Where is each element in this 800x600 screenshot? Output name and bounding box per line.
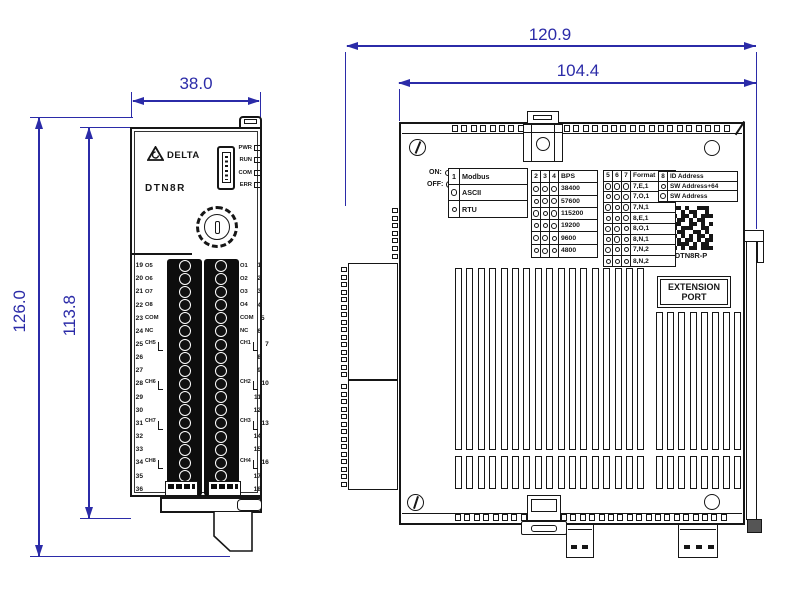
vent-notch (502, 514, 508, 521)
terminal-number: 16 (260, 459, 269, 466)
terminal-row: 22O8 (132, 298, 166, 311)
vent-notch (580, 514, 586, 521)
dim-arrow-up-icon (35, 117, 43, 129)
dip-row-label: 8,N,2 (631, 256, 675, 267)
terminal-screw (179, 339, 191, 351)
vent-slat (535, 268, 542, 450)
terminal-labels-right: O11O22O33O44COM5NC6CH1789CH2101112CH3131… (240, 259, 261, 496)
vent-slat (615, 268, 622, 450)
mount-tooth (341, 282, 347, 287)
led-row: PWR (234, 142, 261, 154)
vent-notch (711, 514, 717, 521)
dim-arrow-left-icon (346, 42, 358, 50)
terminal-screw (179, 312, 191, 324)
vent-slat (489, 268, 496, 450)
dip-row-label: 19200 (559, 220, 597, 231)
dip-row-label: 115200 (559, 208, 597, 219)
dip-header-cell: ID Address (668, 172, 737, 181)
channel-bracket-icon (253, 381, 258, 390)
vent-notch (471, 125, 477, 132)
terminal-number: 18 (252, 486, 261, 493)
dip-row-label: 8,N,1 (631, 235, 675, 245)
dip-switch-cell (613, 213, 622, 223)
vent-notch (592, 125, 598, 132)
dip-table-row: 8,E,1 (604, 213, 675, 224)
mount-tooth (341, 444, 347, 449)
mount-tooth (341, 467, 347, 472)
vent-slat (592, 456, 599, 489)
terminal-screw (179, 378, 191, 390)
terminal-strip-2[interactable] (204, 259, 239, 496)
mount-tooth (341, 384, 347, 389)
din-rail-plate (746, 232, 757, 520)
terminal-number: 24 (132, 328, 143, 335)
dip-state-off-icon (551, 223, 558, 230)
mount-tooth (341, 312, 347, 317)
bottom-connector-2-line (680, 529, 716, 530)
vent-notch (714, 125, 720, 132)
terminal-number: 27 (132, 367, 143, 374)
dip-switch-cell (604, 192, 613, 202)
terminal-row: 14 (240, 430, 261, 443)
dip-table-header: 8ID Address (659, 172, 737, 182)
terminal-row: CH416 (240, 456, 261, 469)
dip-row-label: 7,N,1 (631, 203, 675, 213)
terminal-screw (179, 286, 191, 298)
dip-state-on-icon (615, 247, 620, 252)
mount-tooth (341, 459, 347, 464)
terminal-screw (179, 457, 191, 469)
dip-state-off-icon (614, 226, 621, 233)
vent-slat (478, 268, 485, 450)
mount-tooth (392, 231, 398, 236)
dip-header-cell: 8 (659, 172, 668, 181)
vent-slat (712, 312, 719, 450)
terminal-number: 8 (252, 354, 261, 361)
side-ext-line (399, 89, 400, 121)
vent-notch (674, 514, 680, 521)
mount-tooth (341, 482, 347, 487)
bottom-connector-1-line (568, 529, 592, 530)
dip-state-off-icon (605, 247, 612, 254)
terminal-row: 29 (132, 391, 166, 404)
vent-slat (512, 456, 519, 489)
channel-bracket-icon (158, 460, 163, 469)
vent-notch (474, 514, 480, 521)
dip-state-on-icon (606, 216, 611, 221)
side-ext-line (345, 52, 346, 206)
vent-slat (678, 456, 685, 489)
terminal-screw (215, 273, 227, 285)
dip-table-row: 9600 (532, 232, 597, 244)
terminal-number: 20 (132, 275, 143, 282)
vent-slat (701, 456, 708, 489)
mount-tooth (341, 320, 347, 325)
side-inner-top-line (402, 133, 742, 134)
side-ext-line (756, 52, 757, 229)
vent-notch (611, 125, 617, 132)
terminal-row: 26 (132, 351, 166, 364)
vent-notch (461, 125, 467, 132)
dip-header-cell: 1 (449, 169, 460, 184)
vent-notch (683, 514, 689, 521)
mount-tooth (392, 246, 398, 251)
vent-slat (603, 268, 610, 450)
mount-tooth (392, 208, 398, 213)
dip-switch-cell (541, 183, 550, 194)
terminal-number: 10 (260, 380, 269, 387)
terminal-label: O5 (145, 263, 153, 269)
dim-arrow-right-icon (744, 79, 756, 87)
terminal-label: NC (145, 328, 153, 334)
terminal-number: 29 (132, 394, 143, 401)
dip-state-off-icon (660, 193, 667, 200)
vent-slat (569, 268, 576, 450)
terminal-number: 12 (252, 407, 261, 414)
vent-notch (518, 125, 524, 132)
vent-notch (693, 514, 699, 521)
terminal-number: 11 (252, 394, 261, 401)
vent-slat (466, 268, 473, 450)
vent-notch (599, 514, 605, 521)
terminal-number: 31 (132, 420, 143, 427)
vent-notch (583, 125, 589, 132)
led-label: PWR (238, 145, 252, 151)
channel-bracket-icon (158, 381, 163, 390)
side-inner-width-dim-line (399, 82, 756, 84)
led-indicator (254, 182, 261, 188)
dip-switch-cell (532, 183, 541, 194)
front-ext-line (260, 92, 261, 117)
case-screw[interactable] (704, 494, 720, 510)
vent-slat (569, 456, 576, 489)
terminal-block-profile-1 (348, 263, 398, 380)
dip-table-row: SW Address (659, 191, 737, 201)
dip-table-row: RTU (449, 201, 527, 217)
connector-pin (708, 545, 714, 549)
terminal-row: 9 (240, 364, 261, 377)
vent-slat (734, 312, 741, 450)
terminal-block-profile-2 (348, 380, 398, 490)
vent-slat (580, 456, 587, 489)
terminal-label: CH5 (145, 340, 156, 346)
channel-bracket-icon (253, 460, 258, 469)
mount-tooth (341, 452, 347, 457)
terminal-row: NC6 (240, 325, 261, 338)
dip-switch-cell (659, 191, 668, 201)
mount-tooth (341, 305, 347, 310)
terminal-row: O33 (240, 285, 261, 298)
led-row: ERR (234, 179, 261, 191)
vent-slat (592, 268, 599, 450)
mount-tooth (341, 437, 347, 442)
vent-slat (546, 456, 553, 489)
dip-switch-cell (613, 182, 622, 192)
vent-slat (626, 456, 633, 489)
front-foot-tab (237, 499, 262, 511)
vent-slat (637, 456, 644, 489)
vent-slat (656, 312, 663, 450)
brand-wordmark: DELTA (167, 150, 200, 161)
terminal-label: O3 (240, 289, 248, 295)
dip-state-off-icon (614, 236, 621, 243)
terminal-row: 23COM (132, 312, 166, 325)
case-screw[interactable] (704, 140, 720, 156)
vent-slat (466, 456, 473, 489)
dip-state-off-icon (542, 248, 549, 255)
vent-slat (667, 312, 674, 450)
terminal-screw (215, 365, 227, 377)
vent-notch (499, 125, 505, 132)
dip-header-cell: 6 (613, 171, 622, 181)
dip-state-on-icon (543, 223, 548, 228)
terminal-label: CH3 (240, 418, 251, 424)
vent-slat (523, 268, 530, 450)
dip-row-label: 38400 (559, 183, 597, 194)
vent-notch (561, 514, 567, 521)
led-row: COM (234, 167, 261, 179)
front-ext-line (80, 127, 131, 128)
vent-slat (546, 268, 553, 450)
dip-switch-cell (613, 224, 622, 234)
front-ext-line (80, 518, 131, 519)
din-clip-top-rib (554, 124, 555, 162)
vent-notch (483, 514, 489, 521)
vent-notch (452, 125, 458, 132)
terminal-number: 23 (132, 315, 143, 322)
mount-tooth (341, 342, 347, 347)
led-label: ERR (240, 182, 252, 188)
channel-bracket-icon (253, 421, 258, 430)
terminal-label: CH6 (145, 379, 156, 385)
mount-tooth (341, 392, 347, 397)
mount-tooth (392, 254, 398, 259)
dip-row-label: 9600 (559, 232, 597, 243)
dip-state-on-icon (624, 247, 629, 252)
dip-state-off-icon (623, 215, 630, 222)
dip-switch-cell (532, 220, 541, 231)
dip-state-off-icon (542, 186, 549, 193)
mount-tooth (341, 407, 347, 412)
dip-switch-cell (532, 232, 541, 243)
led-label: RUN (239, 157, 252, 163)
din-clip-top-tab-slot (533, 115, 552, 121)
dip-row-label: SW Address+64 (668, 182, 737, 191)
led-indicator (254, 170, 261, 176)
dip-row-label: 4800 (559, 245, 597, 257)
vent-notch (511, 514, 517, 521)
dip-state-on-icon (624, 237, 629, 242)
dimension-drawing-canvas: 38.0 126.0 113.8 DELTA DTN8R PWRRUNCOMER… (0, 0, 800, 600)
mount-tooth (341, 414, 347, 419)
terminal-screw (179, 444, 191, 456)
dip-state-off-icon (451, 189, 458, 196)
terminal-screw (215, 391, 227, 403)
terminal-screw (179, 365, 191, 377)
vent-notch (508, 125, 514, 132)
dip-state-on-icon (624, 259, 629, 264)
dip-table-baud-rate: 234BPS38400576001152001920096004800 (531, 170, 598, 258)
terminal-number: 5 (256, 315, 265, 322)
terminal-row: 19O5 (132, 259, 166, 272)
terminal-row: O44 (240, 298, 261, 311)
dip-state-on-icon (552, 236, 557, 241)
terminal-screw (215, 325, 227, 337)
terminal-row: COM5 (240, 312, 261, 325)
led-indicator (254, 157, 261, 163)
terminal-row: 18 (240, 483, 261, 496)
terminal-row: 12 (240, 404, 261, 417)
front-top-tab-slot (244, 119, 257, 124)
terminal-screw (179, 352, 191, 364)
terminal-row: CH313 (240, 417, 261, 430)
vent-notch (620, 125, 626, 132)
front-bottom-connector-1-slots (168, 484, 195, 489)
vent-slat (478, 456, 485, 489)
terminal-screw (179, 431, 191, 443)
mount-tooth (392, 216, 398, 221)
terminal-screw (179, 391, 191, 403)
terminal-screw (215, 312, 227, 324)
connector-pin (582, 545, 588, 549)
terminal-row: 33 (132, 443, 166, 456)
dip-header-cell: Modbus (460, 169, 527, 184)
terminal-screw (179, 417, 191, 429)
terminal-screw (179, 325, 191, 337)
mount-tooth (341, 372, 347, 377)
terminal-label: O1 (240, 263, 248, 269)
dip-table-row: 115200 (532, 208, 597, 220)
terminal-row: 31CH7 (132, 417, 166, 430)
dip-state-off-icon (605, 204, 612, 211)
vent-notch (705, 125, 711, 132)
dip-table-row: 7,N,1 (604, 203, 675, 214)
dip-header-cell: 4 (550, 171, 559, 182)
vent-slat (723, 456, 730, 489)
terminal-row: 21O7 (132, 285, 166, 298)
terminal-number: 4 (252, 302, 261, 309)
vent-notch (646, 514, 652, 521)
dip-table-row: 4800 (532, 245, 597, 257)
dip-switch-cell (541, 196, 550, 207)
front-inner-height-dim-line (88, 128, 90, 518)
dip-switch-cell (613, 192, 622, 202)
dip-switch-cell (550, 220, 559, 231)
dip-switch-cell (541, 232, 550, 243)
dip-switch-cell (550, 183, 559, 194)
vent-slat (580, 268, 587, 450)
vent-slat (723, 312, 730, 450)
vent-notch (696, 125, 702, 132)
dip-switch-cell (604, 256, 613, 267)
front-ext-line (131, 92, 132, 118)
dip-state-on-icon (615, 259, 620, 264)
terminal-label: O6 (145, 276, 153, 282)
vent-notch (636, 514, 642, 521)
terminal-label: CH8 (145, 458, 156, 464)
dip-switch-cell (622, 256, 631, 267)
mount-tooth (341, 335, 347, 340)
terminal-number: 33 (132, 446, 143, 453)
terminal-row: 24NC (132, 325, 166, 338)
terminal-screw (215, 378, 227, 390)
dip-legend-off-label: OFF: (427, 181, 443, 188)
terminal-number: 9 (252, 367, 261, 374)
terminal-number: 21 (132, 288, 143, 295)
terminal-label: CH1 (240, 340, 251, 346)
vent-notch (521, 514, 527, 521)
terminal-label: O7 (145, 289, 153, 295)
terminal-number: 32 (132, 433, 143, 440)
terminal-screw (179, 273, 191, 285)
din-clip-top-rib (531, 124, 532, 162)
dip-switch-cell (659, 182, 668, 191)
dip-row-label: 57600 (559, 196, 597, 207)
dip-table-id-address: 8ID AddressSW Address+64SW Address (658, 171, 738, 202)
vent-notch (664, 514, 670, 521)
terminal-screw (215, 431, 227, 443)
vent-slat (678, 312, 685, 450)
dip-state-on-icon (552, 248, 557, 253)
vent-notch (667, 125, 673, 132)
dip-state-on-icon (606, 237, 611, 242)
dip-state-on-icon (606, 259, 611, 264)
dip-switch-cell (532, 208, 541, 219)
terminal-row: O11 (240, 259, 261, 272)
usb-pin-stripes-icon (225, 156, 228, 180)
terminal-screw (215, 444, 227, 456)
dip-row-label: ASCII (460, 185, 527, 200)
terminal-label: O8 (145, 302, 153, 308)
vent-slat (701, 312, 708, 450)
dip-state-off-icon (605, 226, 612, 233)
led-label: COM (238, 170, 252, 176)
dip-table-row: SW Address+64 (659, 182, 737, 192)
terminal-number: 7 (260, 341, 269, 348)
vent-notch (658, 125, 664, 132)
terminal-number: 22 (132, 302, 143, 309)
vent-notch (617, 514, 623, 521)
terminal-strip-1[interactable] (167, 259, 202, 496)
dip-row-label: 8,E,1 (631, 213, 675, 223)
dip-table-row: 7,N,2 (604, 245, 675, 256)
din-clip-top-hole (536, 137, 550, 151)
dip-switch-cell (622, 235, 631, 245)
mount-tooth (341, 297, 347, 302)
dip-state-off-icon (542, 235, 549, 242)
vent-notch (464, 514, 470, 521)
dip-table-row: 8,N,2 (604, 256, 675, 267)
dim-arrow-up-icon (85, 127, 93, 139)
terminal-row: 32 (132, 430, 166, 443)
terminal-screw (215, 299, 227, 311)
dip-table-row: 38400 (532, 183, 597, 195)
terminal-row: 35 (132, 470, 166, 483)
vent-slat (667, 456, 674, 489)
dip-state-on-icon (661, 184, 666, 189)
dip-table-header: 234BPS (532, 171, 597, 183)
channel-bracket-icon (253, 342, 258, 351)
dip-switch-cell (604, 203, 613, 213)
vent-slat (637, 268, 644, 450)
vent-slat (455, 268, 462, 450)
terminal-label: NC (240, 328, 248, 334)
dip-state-on-icon (624, 226, 629, 231)
terminal-row: 17 (240, 470, 261, 483)
dip-state-on-icon (534, 248, 539, 253)
dip-switch-cell (604, 213, 613, 223)
vent-notch (677, 125, 683, 132)
